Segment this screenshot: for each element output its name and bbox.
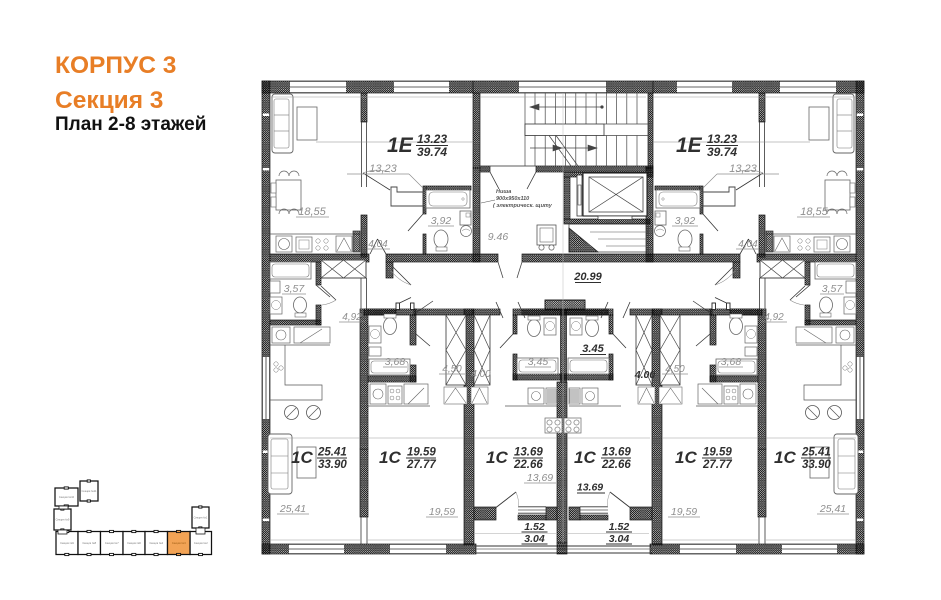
svg-text:27.77: 27.77 [702, 459, 732, 471]
svg-text:Секция №6: Секция №6 [127, 541, 141, 545]
svg-text:13.23: 13.23 [417, 132, 447, 146]
svg-text:13,23: 13,23 [729, 163, 757, 175]
svg-text:3,92: 3,92 [431, 215, 452, 227]
svg-text:39.74: 39.74 [707, 145, 737, 159]
svg-text:13.23: 13.23 [707, 132, 737, 146]
svg-text:4,00: 4,00 [471, 369, 491, 380]
svg-text:1С: 1С [774, 448, 796, 467]
svg-text:1Е: 1Е [387, 134, 414, 157]
svg-text:1С: 1С [675, 448, 697, 467]
svg-text:Секция №9: Секция №9 [60, 541, 74, 545]
svg-text:25.41: 25.41 [801, 447, 831, 459]
svg-text:25,41: 25,41 [819, 503, 846, 515]
svg-text:19.59: 19.59 [703, 447, 732, 459]
svg-text:900х950х110: 900х950х110 [496, 196, 529, 202]
svg-text:19,59: 19,59 [429, 506, 455, 518]
svg-text:22.66: 22.66 [601, 459, 631, 471]
svg-text:13.69: 13.69 [577, 482, 603, 494]
svg-text:13.69: 13.69 [514, 447, 543, 459]
svg-text:3,68: 3,68 [721, 356, 742, 368]
svg-text:4,92: 4,92 [342, 312, 362, 323]
svg-text:18,55: 18,55 [800, 206, 828, 218]
svg-text:22.66: 22.66 [513, 459, 543, 471]
svg-text:Секция №10: Секция №10 [59, 495, 75, 499]
svg-text:1С: 1С [486, 448, 508, 467]
svg-text:13,23: 13,23 [369, 163, 397, 175]
svg-text:3.04: 3.04 [609, 533, 630, 545]
svg-text:9.46: 9.46 [488, 231, 509, 243]
svg-text:33.90: 33.90 [318, 459, 347, 471]
svg-text:3,45: 3,45 [528, 356, 549, 368]
svg-text:4,50: 4,50 [442, 364, 462, 375]
svg-text:4.00: 4.00 [634, 369, 656, 381]
svg-text:13.69: 13.69 [602, 447, 631, 459]
svg-text:1С: 1С [574, 448, 596, 467]
svg-text:Секция №9: Секция №9 [56, 518, 70, 522]
svg-text:3.04: 3.04 [524, 533, 545, 545]
svg-text:20.99: 20.99 [573, 271, 602, 283]
svg-text:4,92: 4,92 [764, 312, 784, 323]
svg-text:Секция №7: Секция №7 [105, 541, 119, 545]
svg-text:27.77: 27.77 [406, 459, 436, 471]
svg-text:3.45: 3.45 [582, 343, 604, 355]
svg-text:Секция №4: Секция №4 [149, 541, 163, 545]
svg-text:4,04: 4,04 [738, 239, 758, 250]
svg-text:1Е: 1Е [676, 134, 703, 157]
svg-text:3,57: 3,57 [284, 283, 306, 295]
svg-text:4,04: 4,04 [368, 239, 388, 250]
svg-text:33.90: 33.90 [802, 459, 831, 471]
svg-text:3,68: 3,68 [385, 356, 406, 368]
svg-text:18,55: 18,55 [298, 206, 326, 218]
svg-text:Ниша: Ниша [496, 189, 511, 195]
svg-text:3,57: 3,57 [822, 283, 844, 295]
svg-text:Секция №2: Секция №2 [194, 541, 208, 545]
svg-text:13,69: 13,69 [527, 472, 553, 484]
svg-text:1.52: 1.52 [609, 521, 630, 533]
svg-text:4,50: 4,50 [665, 364, 685, 375]
svg-text:3,92: 3,92 [675, 215, 696, 227]
svg-text:19.59: 19.59 [407, 447, 436, 459]
svg-text:19,59: 19,59 [671, 506, 697, 518]
svg-text:( электрическ. щиту: ( электрическ. щиту [493, 203, 553, 209]
svg-text:Секция №3: Секция №3 [172, 541, 186, 545]
svg-text:План 2-8 этажей: План 2-8 этажей [55, 114, 206, 135]
svg-text:25,41: 25,41 [279, 503, 306, 515]
svg-text:Секция 3: Секция 3 [55, 87, 163, 114]
svg-text:1.52: 1.52 [524, 521, 545, 533]
svg-text:Секция №1: Секция №1 [194, 516, 208, 520]
svg-text:Секция №11: Секция №11 [82, 489, 98, 493]
svg-text:Секция №8: Секция №8 [82, 541, 96, 545]
svg-text:1С: 1С [379, 448, 401, 467]
svg-text:КОРПУС 3: КОРПУС 3 [55, 52, 176, 79]
svg-text:25.41: 25.41 [317, 447, 347, 459]
svg-text:1С: 1С [291, 448, 313, 467]
svg-text:39.74: 39.74 [417, 145, 447, 159]
